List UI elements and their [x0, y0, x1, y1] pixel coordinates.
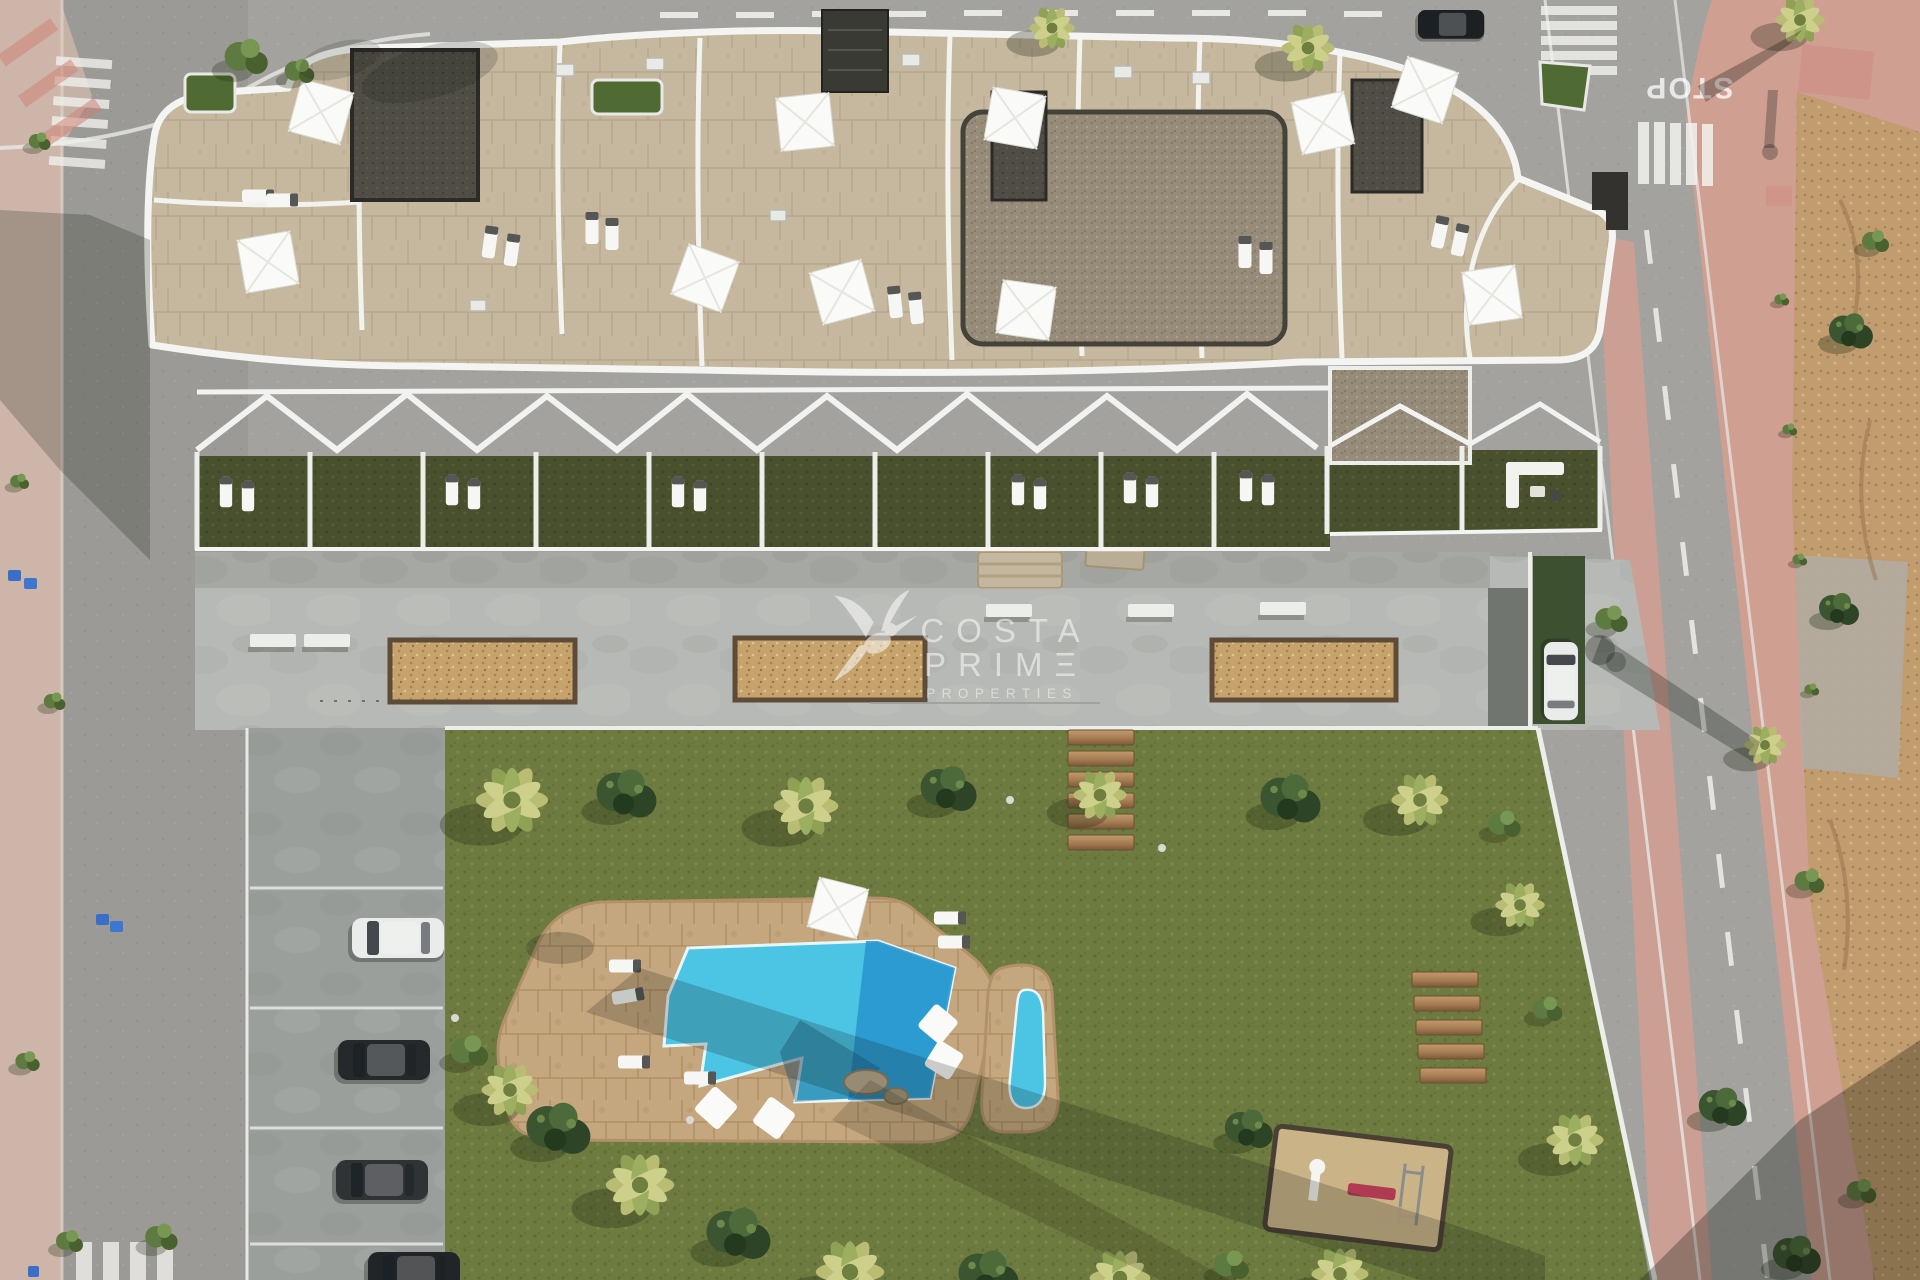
- parked-car-dark: [332, 1160, 428, 1204]
- planter-box: [1212, 640, 1396, 700]
- sidewalk-pink-tile: [1766, 186, 1792, 206]
- parked-car-white: [348, 918, 444, 962]
- corner-hedge: [1540, 62, 1590, 110]
- entrance-hedge: [592, 80, 662, 114]
- rubble-pile: [1795, 555, 1908, 778]
- rooftop-core-box: [822, 10, 888, 92]
- parked-car-dark: [364, 1252, 460, 1280]
- watermark-line1: COSTA: [920, 612, 1091, 649]
- lamp-head-shadow: [1762, 144, 1778, 160]
- bench: [1126, 604, 1174, 622]
- gravel-patio: [1330, 368, 1470, 463]
- pergola-shadow: [195, 552, 1490, 588]
- planter-box: [390, 640, 575, 702]
- deck-shadow: [526, 932, 594, 964]
- parked-car-white: [1541, 639, 1578, 721]
- planter-box: [735, 638, 925, 700]
- parked-car-dark: [334, 1040, 430, 1084]
- sidewalk-pink-tile: [1798, 44, 1875, 99]
- watermark-line2: PRIMΞ: [924, 646, 1088, 683]
- garage-ramp: [1488, 588, 1532, 728]
- scene-canvas: STOP: [0, 0, 1920, 1280]
- bench: [248, 634, 296, 652]
- street-car-dark: [1415, 10, 1484, 42]
- tree-shadow-canopy: [1606, 652, 1626, 672]
- bench: [302, 634, 350, 652]
- aerial-render: STOP: [0, 0, 1920, 1280]
- bench: [1258, 602, 1306, 620]
- watermark-line3: PROPERTIES: [926, 686, 1078, 701]
